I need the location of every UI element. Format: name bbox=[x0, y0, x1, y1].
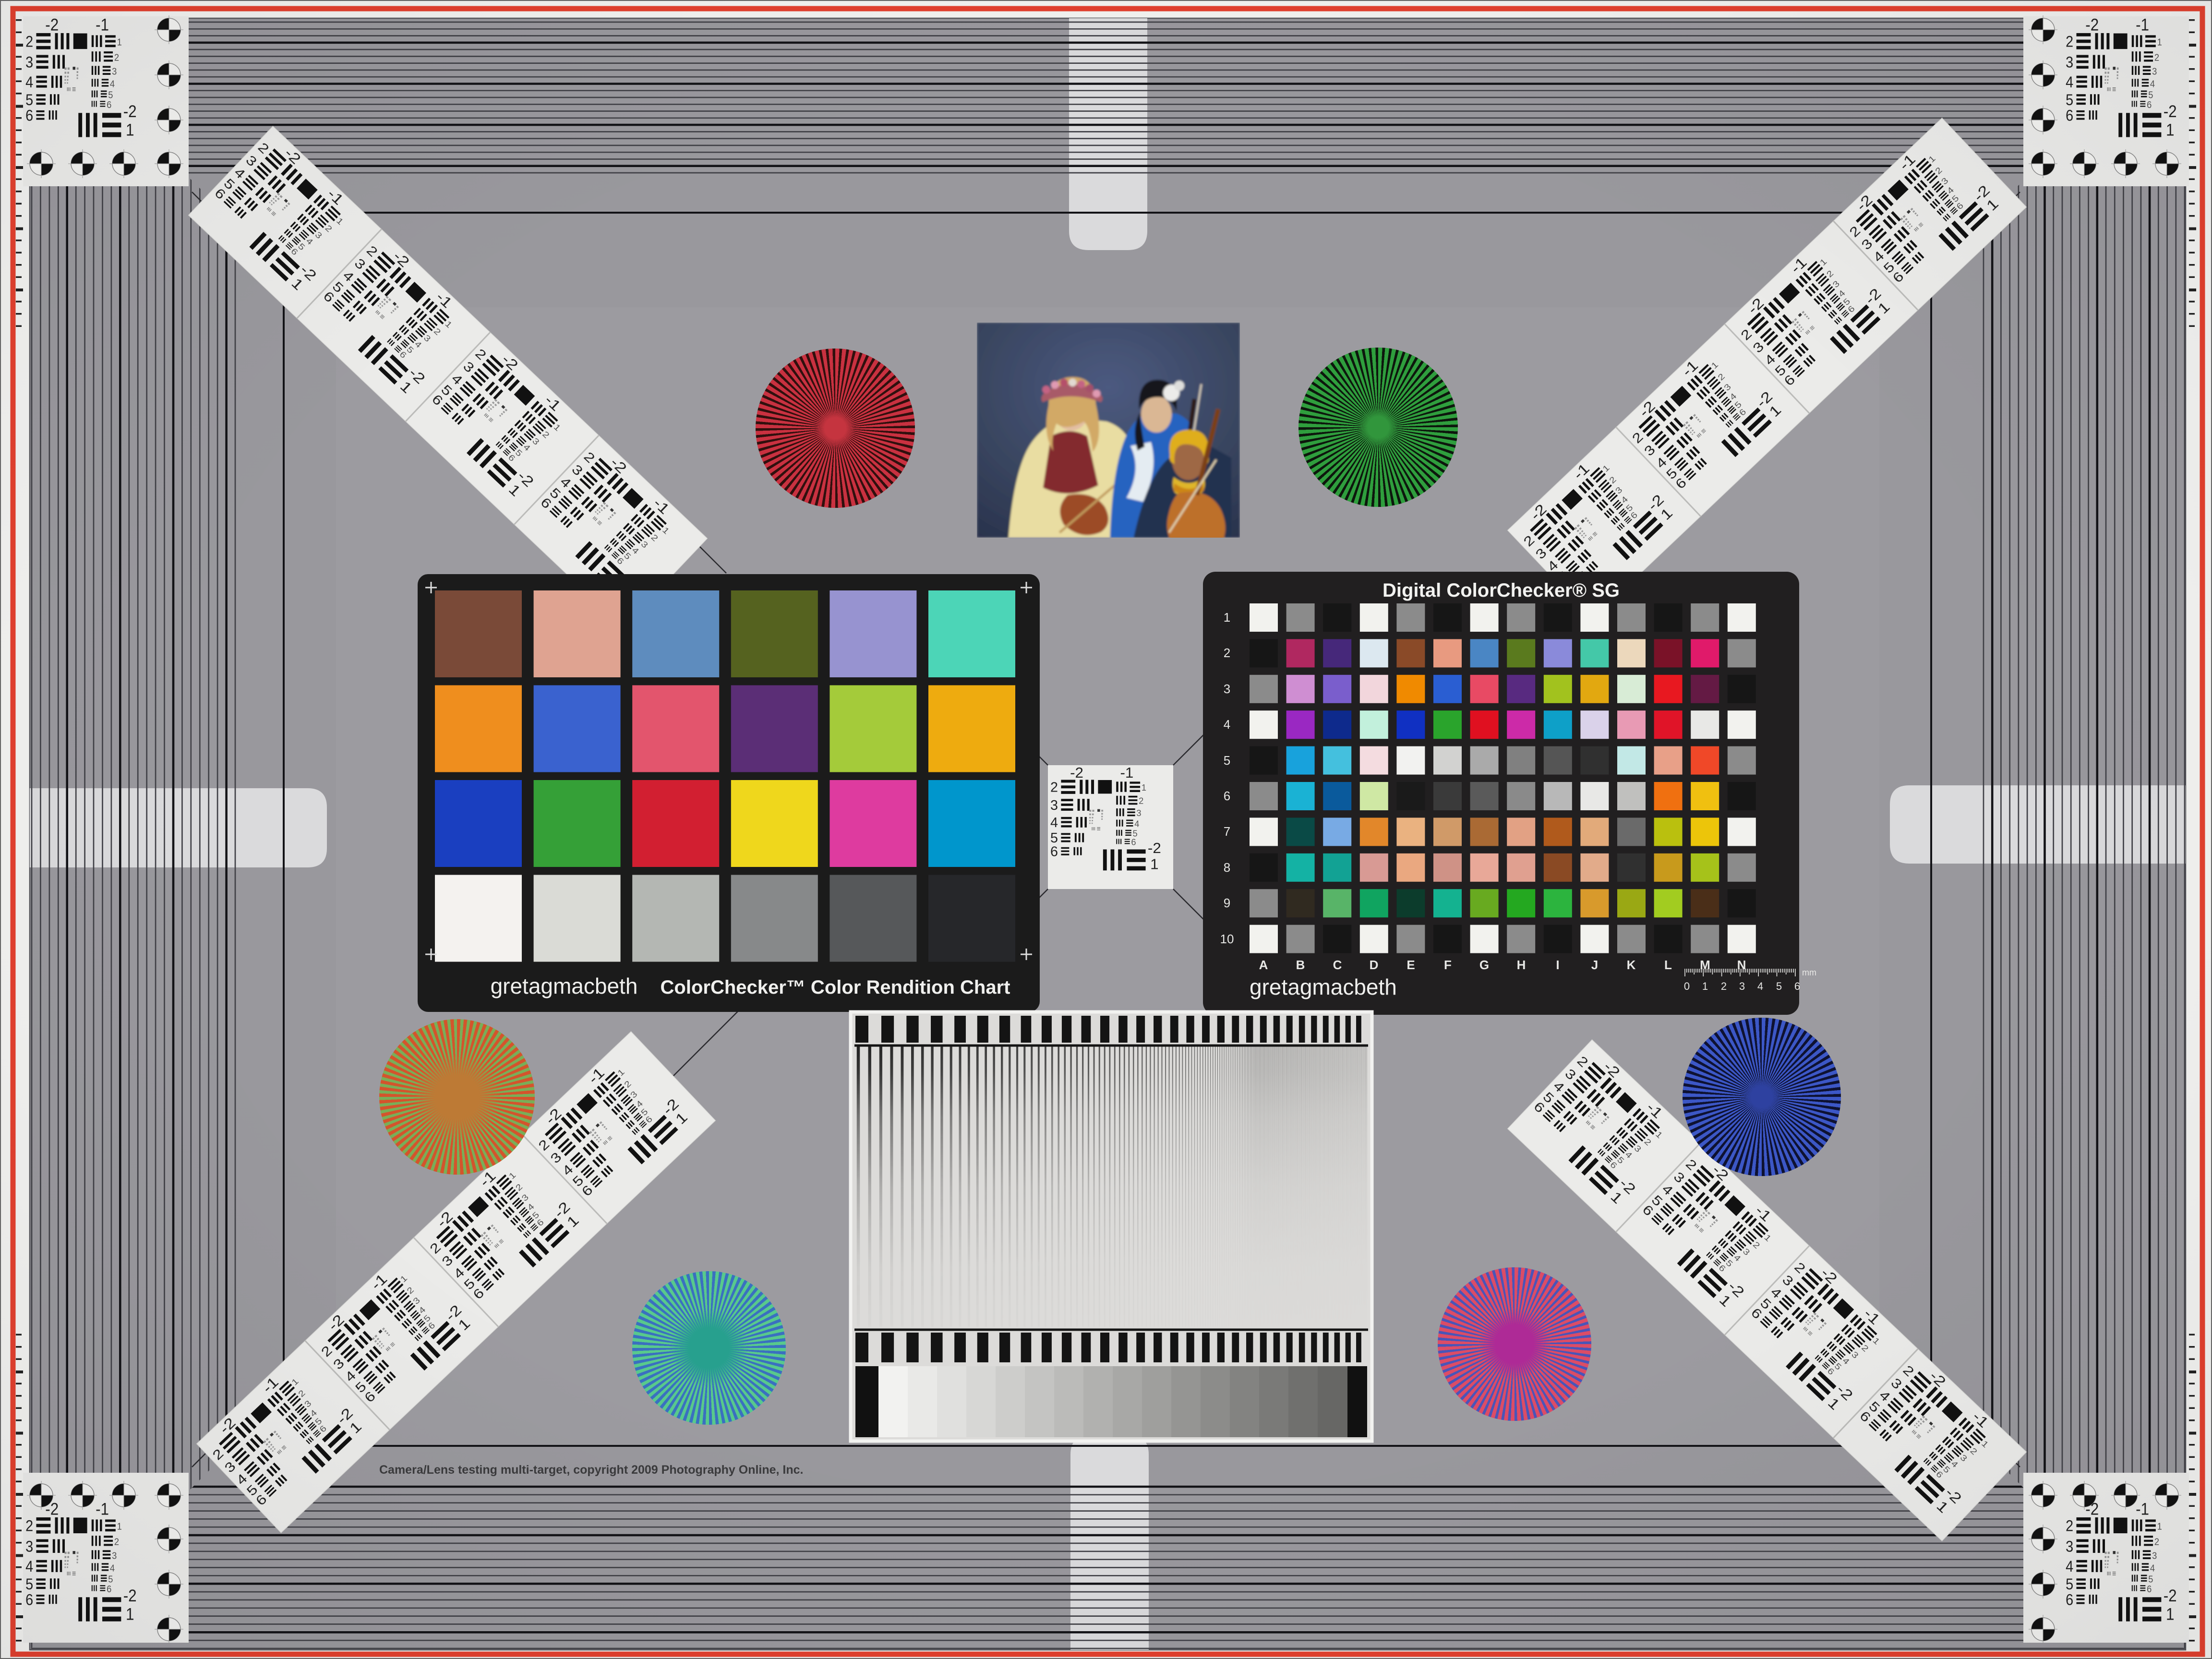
svg-text:7: 7 bbox=[1224, 824, 1230, 839]
svg-text:D: D bbox=[1370, 958, 1379, 972]
svg-text:gretagmacbeth: gretagmacbeth bbox=[491, 974, 638, 998]
svg-text:2: 2 bbox=[1224, 646, 1230, 660]
svg-text:L: L bbox=[1664, 958, 1672, 972]
svg-text:J: J bbox=[1591, 958, 1598, 972]
svg-text:ColorChecker™ Color Rendition: ColorChecker™ Color Rendition Chart bbox=[661, 977, 1010, 998]
svg-text:0: 0 bbox=[1684, 980, 1690, 992]
svg-text:3: 3 bbox=[1224, 682, 1230, 696]
svg-text:B: B bbox=[1296, 958, 1305, 972]
svg-text:A: A bbox=[1259, 958, 1268, 972]
svg-text:2: 2 bbox=[1721, 980, 1727, 992]
svg-text:3: 3 bbox=[1739, 980, 1745, 992]
svg-text:8: 8 bbox=[1224, 860, 1230, 875]
svg-text:C: C bbox=[1333, 958, 1342, 972]
svg-text:4: 4 bbox=[1224, 717, 1230, 732]
svg-text:H: H bbox=[1517, 958, 1526, 972]
svg-text:5: 5 bbox=[1224, 753, 1230, 768]
svg-text:F: F bbox=[1444, 958, 1452, 972]
svg-text:6: 6 bbox=[1794, 980, 1800, 992]
svg-text:mm: mm bbox=[1802, 968, 1816, 977]
svg-text:I: I bbox=[1556, 958, 1559, 972]
svg-text:K: K bbox=[1627, 958, 1636, 972]
svg-text:1: 1 bbox=[1702, 980, 1708, 992]
svg-text:6: 6 bbox=[1224, 789, 1230, 803]
svg-text:1: 1 bbox=[1224, 610, 1230, 625]
svg-text:10: 10 bbox=[1220, 932, 1234, 946]
svg-text:Digital ColorChecker® SG: Digital ColorChecker® SG bbox=[1382, 580, 1620, 601]
svg-text:G: G bbox=[1479, 958, 1489, 972]
svg-text:Camera/Lens testing multi-targ: Camera/Lens testing multi-target, copyri… bbox=[379, 1463, 804, 1477]
svg-text:gretagmacbeth: gretagmacbeth bbox=[1250, 974, 1397, 999]
svg-text:4: 4 bbox=[1757, 980, 1763, 992]
svg-text:9: 9 bbox=[1224, 896, 1230, 910]
svg-text:E: E bbox=[1407, 958, 1415, 972]
svg-text:5: 5 bbox=[1776, 980, 1782, 992]
